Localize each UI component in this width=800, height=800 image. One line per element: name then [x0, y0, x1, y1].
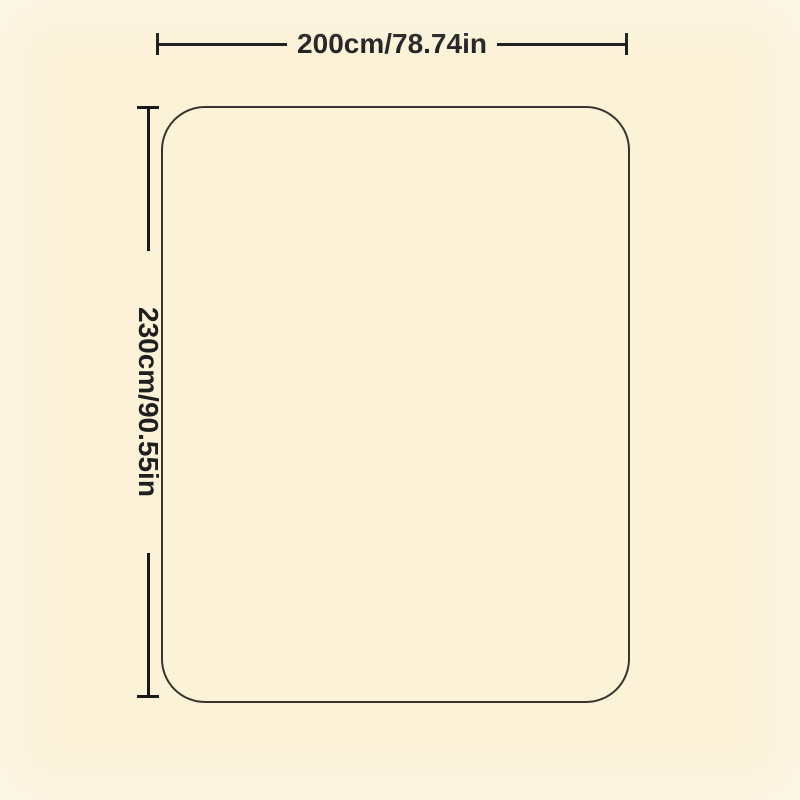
blanket-outline	[161, 106, 630, 703]
height-dimension-line-top	[147, 109, 150, 251]
width-dimension-line-right	[497, 43, 625, 46]
height-dimension-line-bottom	[147, 553, 150, 695]
product-dimension-diagram: 200cm/78.74in 230cm/90.55in	[0, 0, 800, 800]
width-dimension-right-cap	[625, 33, 628, 55]
width-dimension-line-left	[159, 43, 287, 46]
width-dimension: 200cm/78.74in	[156, 31, 628, 57]
height-dimension-label: 230cm/90.55in	[134, 307, 162, 497]
width-dimension-label: 200cm/78.74in	[297, 30, 487, 58]
height-dimension-bottom-cap	[137, 695, 159, 698]
height-dimension: 230cm/90.55in	[135, 106, 161, 698]
